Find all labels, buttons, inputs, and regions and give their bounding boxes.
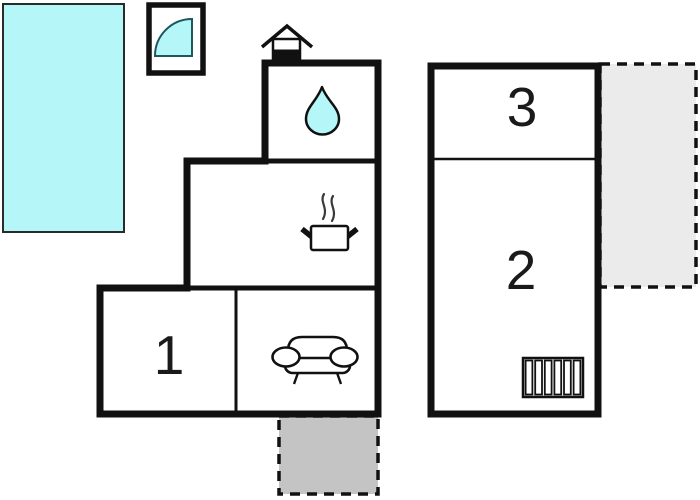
room-2-label: 2 <box>506 239 537 301</box>
corner-bath-window <box>149 5 203 73</box>
fireplace-chimney-icon <box>262 26 312 60</box>
room-3-label: 3 <box>507 76 538 138</box>
radiator-icon <box>523 358 583 397</box>
swimming-pool <box>3 4 124 232</box>
terrace-right <box>600 64 696 287</box>
room-1-label: 1 <box>154 324 185 386</box>
floor-plan: 1 2 3 <box>0 0 700 500</box>
terrace-bottom <box>279 416 378 494</box>
